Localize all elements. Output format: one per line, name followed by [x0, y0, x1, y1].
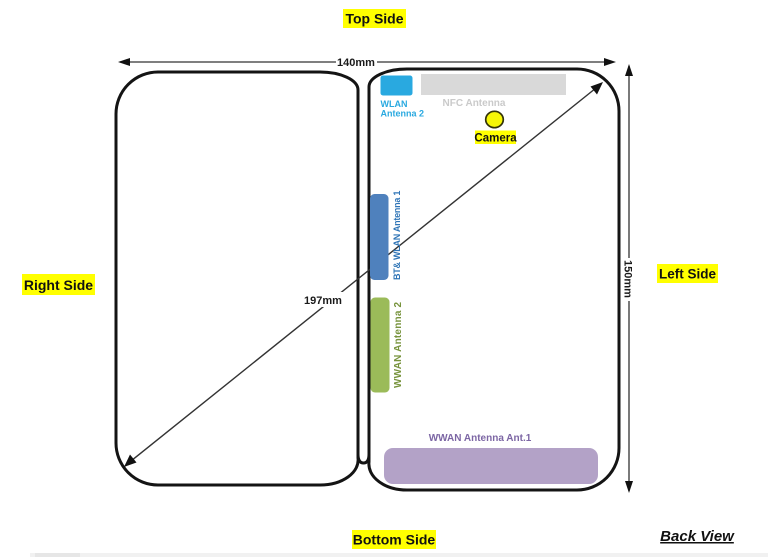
svg-text:Left Side: Left Side: [659, 267, 716, 282]
svg-text:140mm: 140mm: [337, 57, 375, 69]
svg-text:NFC Antenna: NFC Antenna: [443, 98, 506, 109]
svg-text:197mm: 197mm: [304, 295, 342, 307]
svg-text:BT& WLAN Antenna 1: BT& WLAN Antenna 1: [392, 191, 402, 280]
svg-text:Right Side: Right Side: [24, 277, 93, 293]
svg-text:Antenna 2: Antenna 2: [381, 109, 425, 119]
svg-text:WWAN Antenna 2: WWAN Antenna 2: [393, 301, 404, 388]
svg-text:Bottom Side: Bottom Side: [353, 532, 436, 548]
svg-text:150mm: 150mm: [622, 260, 634, 298]
svg-text:Top Side: Top Side: [345, 11, 403, 27]
svg-text:WWAN Antenna Ant.1: WWAN Antenna Ant.1: [429, 433, 532, 444]
svg-text:Back View: Back View: [660, 528, 735, 545]
svg-text:WLAN: WLAN: [381, 99, 408, 109]
svg-text:Camera: Camera: [474, 133, 517, 145]
